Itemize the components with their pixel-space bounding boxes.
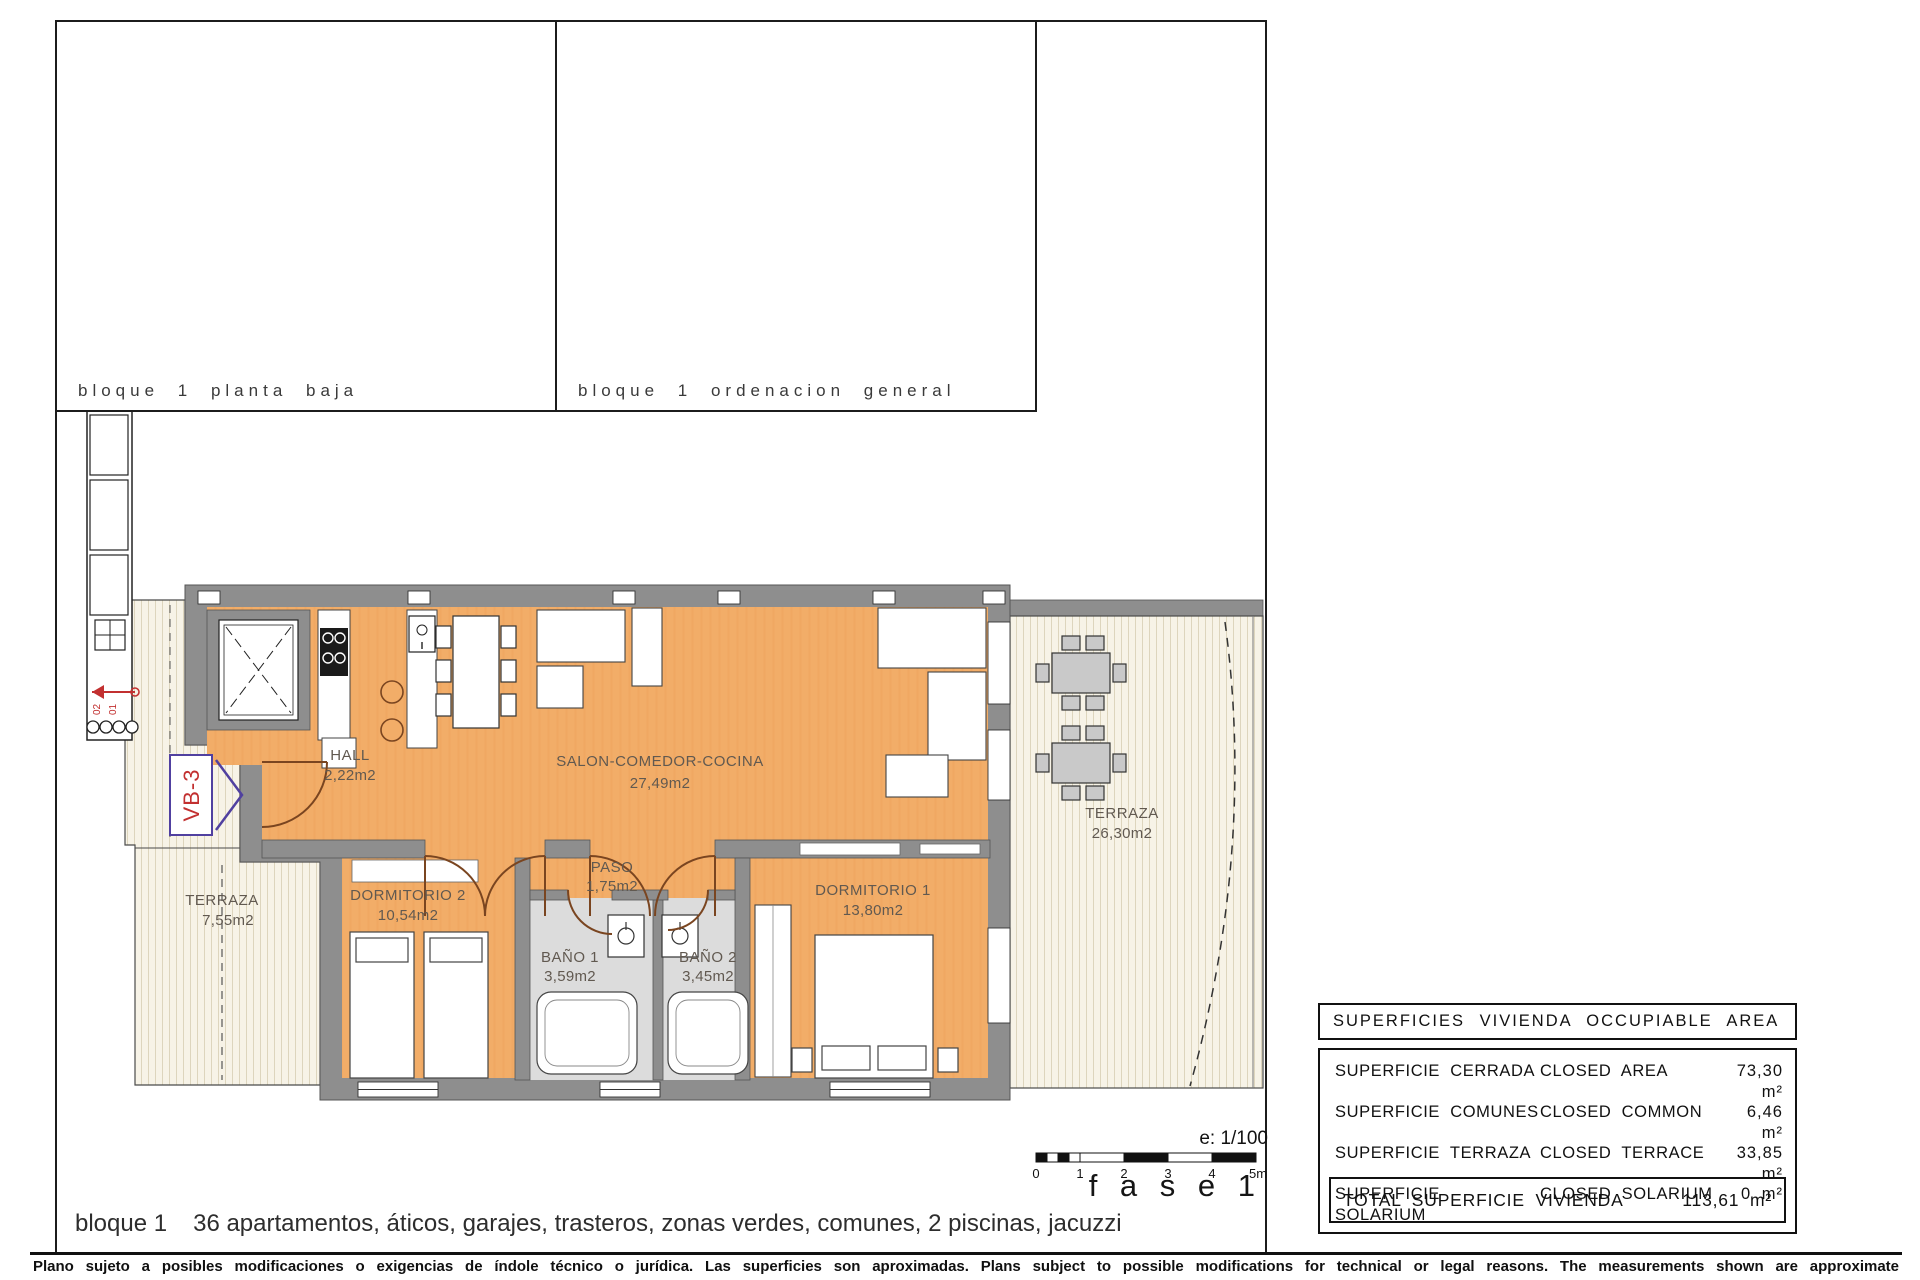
block-name: bloque 1 [75,1210,167,1237]
row-label-es: SUPERFICIE CERRADA [1335,1061,1540,1102]
row-value: 73,30 m² [1720,1061,1783,1102]
total-label: TOTAL SUPERFICIE VIVIENDA [1343,1190,1624,1211]
panel-ordenacion [555,20,1037,412]
table-row: SUPERFICIE COMUNES CLOSED COMMON 6,46 m² [1335,1102,1783,1143]
row-value: 6,46 m² [1720,1102,1783,1143]
phase-label: f a s e 1 [960,1168,1262,1204]
caption-planta-baja: bloque 1 planta baja [78,381,358,401]
total-row: TOTAL SUPERFICIE VIVIENDA 113,61 m² [1329,1177,1786,1223]
row-label-es: SUPERFICIE COMUNES [1335,1102,1540,1143]
row-label-en: CLOSED COMMON [1540,1102,1720,1143]
table-row: SUPERFICIE CERRADA CLOSED AREA 73,30 m² [1335,1061,1783,1102]
surfaces-table-title: SUPERFICIES VIVIENDA OCCUPIABLE AREA [1318,1003,1797,1040]
total-value: 113,61 m² [1682,1190,1772,1211]
footer-disclaimer: Plano sujeto a posibles modificaciones o… [33,1258,1899,1275]
plan-sheet: VB-3 [0,0,1920,1280]
panel-planta-baja [55,20,557,412]
project-features: 36 apartamentos, áticos, garajes, traste… [193,1210,1121,1237]
project-description: bloque 136 apartamentos, áticos, garajes… [75,1210,1255,1238]
scale-ratio: e: 1/100 [1100,1128,1268,1150]
row-label-en: CLOSED AREA [1540,1061,1720,1102]
caption-ordenacion: bloque 1 ordenacion general [578,381,956,401]
footer-rule [30,1252,1902,1255]
surfaces-table: SUPERFICIE CERRADA CLOSED AREA 73,30 m² … [1318,1048,1797,1234]
